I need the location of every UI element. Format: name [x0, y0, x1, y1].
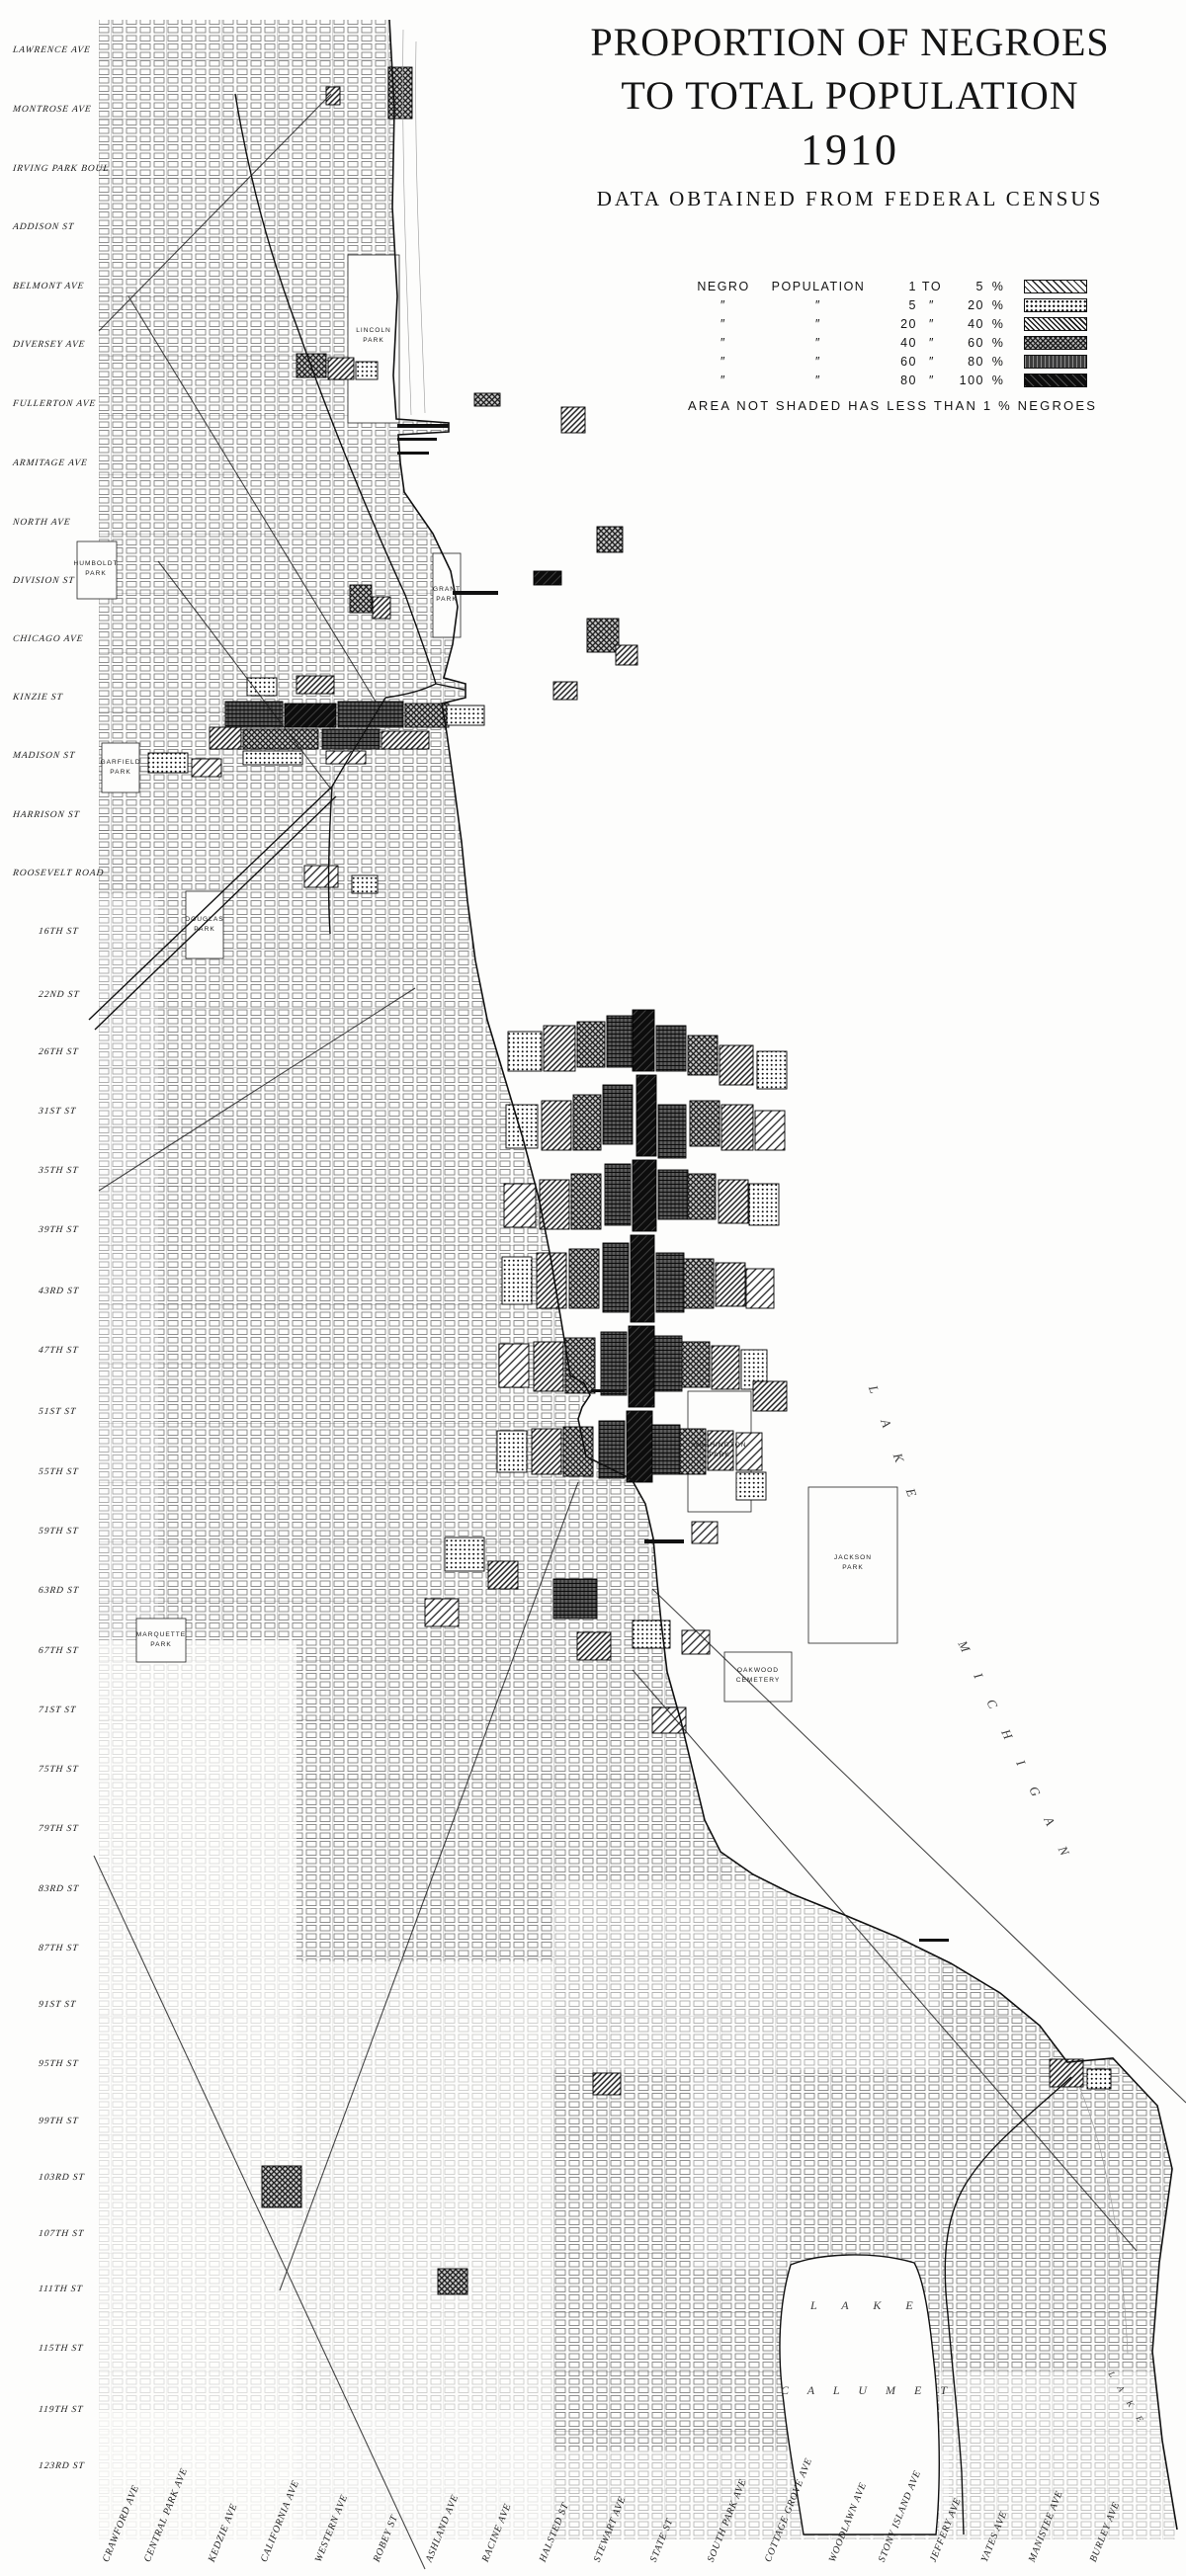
legend-row: ″″80″100%: [688, 371, 1129, 389]
shaded-region-p2: [506, 1105, 538, 1148]
water-label: L A K E: [810, 2298, 924, 2313]
legend-cell: 40: [947, 317, 984, 331]
shaded-region-p4: [262, 2166, 301, 2207]
shaded-region-p6: [633, 1010, 654, 1071]
legend-row: ″″40″60%: [688, 333, 1129, 352]
street-label: 26TH ST: [12, 1047, 147, 1057]
legend-cell: %: [984, 336, 1012, 350]
shaded-region-p2: [247, 678, 277, 696]
shaded-region-p2: [148, 753, 188, 773]
shaded-region-p5: [658, 1105, 686, 1158]
legend-cell: ″: [759, 374, 878, 387]
park-label: GRANT PARK: [433, 585, 461, 605]
shaded-region-p4: [571, 1174, 601, 1229]
shaded-region-p5: [553, 1579, 597, 1619]
shaded-region-p5: [656, 1253, 684, 1312]
street-label: 35TH ST: [12, 1166, 147, 1176]
title-subtitle: DATA OBTAINED FROM FEDERAL CENSUS: [553, 187, 1146, 211]
legend-cell: ″: [688, 336, 759, 350]
shaded-region-p1: [304, 866, 338, 887]
street-label: 47TH ST: [12, 1346, 147, 1356]
shaded-region-p5: [322, 729, 380, 749]
shaded-region-p3: [719, 1180, 748, 1223]
shaded-region-p3: [593, 2073, 621, 2095]
street-label: 63RD ST: [12, 1586, 147, 1596]
shaded-region-p2: [749, 1184, 779, 1225]
shaded-region-p3: [210, 727, 241, 749]
street-label: 111TH ST: [12, 2285, 147, 2294]
title-line-2: TO TOTAL POPULATION: [553, 69, 1146, 123]
legend-cell: 20: [947, 298, 984, 312]
shaded-region-p5: [656, 1026, 686, 1071]
legend-cell: 100: [947, 374, 984, 387]
street-label: 79TH ST: [12, 1824, 147, 1834]
shaded-region-p4: [565, 1338, 595, 1393]
street-label: 123RD ST: [12, 2461, 147, 2471]
shaded-region-p4: [569, 1249, 599, 1308]
shaded-region-p3: [328, 358, 354, 379]
shaded-region-p3: [753, 1381, 787, 1411]
street-label: 119TH ST: [12, 2405, 147, 2415]
street-label: 59TH ST: [12, 1527, 147, 1537]
shaded-region-p4: [688, 1174, 716, 1219]
shaded-region-p2: [445, 1537, 484, 1571]
shaded-region-p4: [438, 2269, 467, 2294]
street-label: FULLERTON AVE: [12, 399, 122, 409]
shaded-region-p6: [534, 571, 561, 585]
street-label: 103RD ST: [12, 2173, 147, 2183]
shaded-region-p6: [285, 704, 336, 727]
street-label: ROOSEVELT ROAD: [12, 869, 122, 878]
shaded-region-p4: [682, 1342, 710, 1387]
shaded-region-p4: [563, 1427, 593, 1476]
park-label: WASHINGTON PARK: [692, 1441, 746, 1460]
shaded-region-p2: [757, 1051, 787, 1089]
shaded-region-p1: [692, 1522, 718, 1543]
street-label: 75TH ST: [12, 1765, 147, 1775]
legend-cell: ″: [759, 355, 878, 369]
shaded-region-p3: [616, 645, 637, 665]
street-label: 31ST ST: [12, 1107, 147, 1117]
legend-cell: 60: [947, 336, 984, 350]
legend-cell: NEGRO: [688, 280, 759, 293]
shaded-region-p2: [502, 1257, 532, 1304]
shaded-region-p5: [654, 1336, 682, 1391]
water-label: C A L U M E T: [781, 2383, 955, 2398]
street-label: 43RD ST: [12, 1287, 147, 1296]
shaded-region-p4: [243, 729, 318, 749]
shaded-region-p3: [553, 682, 577, 700]
shaded-region-p5: [658, 1170, 688, 1219]
legend-swatch-p4: [1024, 336, 1087, 350]
shaded-region-p4: [684, 1259, 714, 1308]
census-map-page: PROPORTION OF NEGROES TO TOTAL POPULATIO…: [0, 0, 1186, 2576]
legend-cell: ″: [917, 317, 947, 331]
legend-row: NEGROPOPULATION1TO5%: [688, 277, 1129, 295]
legend-cell: 60: [878, 355, 917, 369]
legend-swatch-p5: [1024, 355, 1087, 369]
legend-cell: 40: [878, 336, 917, 350]
shaded-region-p4: [350, 585, 372, 613]
legend-cell: 20: [878, 317, 917, 331]
legend-swatch-p6: [1024, 374, 1087, 387]
shaded-region-p2: [736, 1472, 766, 1500]
street-label: MONTROSE AVE: [12, 105, 122, 115]
shaded-region-p5: [605, 1164, 631, 1225]
shaded-region-p1: [682, 1630, 710, 1654]
street-label: BELMONT AVE: [12, 282, 122, 291]
street-label: 87TH ST: [12, 1944, 147, 1953]
legend-cell: ″: [688, 317, 759, 331]
street-label: LAWRENCE AVE: [12, 45, 122, 55]
shaded-region-p6: [631, 1235, 654, 1322]
title-line-1: PROPORTION OF NEGROES: [553, 16, 1146, 69]
shaded-region-p3: [534, 1342, 563, 1391]
shaded-region-p3: [712, 1346, 739, 1389]
shaded-region-p5: [603, 1085, 633, 1144]
street-label: 99TH ST: [12, 2117, 147, 2126]
park-label: MARQUETTE PARK: [136, 1630, 186, 1650]
title-year: 1910: [553, 125, 1146, 175]
legend-row: ″″20″40%: [688, 314, 1129, 333]
park-label: GARFIELD PARK: [101, 758, 141, 778]
shaded-region-p2: [447, 706, 484, 725]
legend-footnote: AREA NOT SHADED HAS LESS THAN 1 % NEGROE…: [688, 398, 1129, 413]
legend-cell: 5: [947, 280, 984, 293]
shaded-region-p1: [504, 1184, 536, 1227]
shaded-region-p3: [561, 407, 585, 433]
legend-cell: 1: [878, 280, 917, 293]
shaded-region-p4: [573, 1095, 601, 1150]
legend-cell: %: [984, 355, 1012, 369]
shaded-region-p5: [652, 1425, 680, 1474]
shaded-region-p1: [746, 1269, 774, 1308]
street-label: 71ST ST: [12, 1705, 147, 1715]
legend-cell: ″: [917, 355, 947, 369]
shaded-region-p4: [587, 619, 619, 652]
legend-row: ″″5″20%: [688, 295, 1129, 314]
shaded-region-p3: [373, 597, 390, 619]
shaded-region-p6: [629, 1326, 654, 1407]
park-label: LINCOLN PARK: [356, 326, 391, 346]
legend-cell: 80: [878, 374, 917, 387]
shaded-region-p6: [633, 1160, 656, 1231]
legend-cell: ″: [917, 298, 947, 312]
street-label: 115TH ST: [12, 2344, 147, 2354]
shaded-region-p4: [577, 1022, 605, 1067]
shaded-region-p1: [192, 759, 221, 777]
map-title-block: PROPORTION OF NEGROES TO TOTAL POPULATIO…: [553, 16, 1146, 211]
shaded-region-p1: [425, 1599, 459, 1626]
legend-rows: NEGROPOPULATION1TO5%″″5″20%″″20″40%″″40″…: [688, 277, 1129, 389]
shaded-region-p3: [532, 1429, 561, 1474]
street-label: CHICAGO AVE: [12, 634, 122, 644]
legend-cell: ″: [759, 317, 878, 331]
shaded-region-p3: [1050, 2059, 1083, 2087]
shaded-region-p4: [690, 1101, 720, 1146]
street-label: HARRISON ST: [12, 810, 122, 820]
shaded-region-p2: [1087, 2069, 1111, 2089]
street-label: 22ND ST: [12, 990, 147, 1000]
legend-cell: 80: [947, 355, 984, 369]
shaded-region-p3: [577, 1632, 611, 1660]
legend-swatch-p1: [1024, 280, 1087, 293]
street-label: 83RD ST: [12, 1884, 147, 1894]
shaded-region-p2: [508, 1032, 542, 1071]
street-label: 51ST ST: [12, 1407, 147, 1417]
legend-cell: TO: [917, 280, 947, 293]
legend-cell: POPULATION: [759, 280, 878, 293]
shaded-region-p2: [243, 751, 302, 765]
shaded-region-p4: [688, 1036, 718, 1075]
street-label: 67TH ST: [12, 1646, 147, 1656]
shaded-region-p5: [607, 1016, 633, 1067]
legend-cell: ″: [917, 374, 947, 387]
shaded-region-p3: [326, 87, 340, 105]
legend-cell: %: [984, 317, 1012, 331]
legend-cell: ″: [688, 374, 759, 387]
legend-cell: %: [984, 298, 1012, 312]
legend-cell: ″: [688, 355, 759, 369]
shaded-region-p3: [296, 676, 334, 694]
shaded-region-p3: [542, 1101, 571, 1150]
shaded-region-p2: [352, 875, 378, 893]
shaded-region-p2: [497, 1431, 527, 1472]
legend-cell: %: [984, 280, 1012, 293]
shaded-region-p5: [603, 1243, 629, 1312]
legend-swatch-p3: [1024, 317, 1087, 331]
street-label: 107TH ST: [12, 2229, 147, 2239]
shaded-region-p4: [474, 393, 500, 406]
shaded-region-p3: [721, 1105, 753, 1150]
legend-cell: 5: [878, 298, 917, 312]
legend-cell: %: [984, 374, 1012, 387]
legend-cell: ″: [688, 298, 759, 312]
street-label: IRVING PARK BOUL: [12, 164, 122, 174]
shaded-region-p2: [356, 362, 378, 379]
shaded-region-p3: [381, 731, 429, 749]
shaded-region-p3: [544, 1026, 575, 1071]
street-label: 39TH ST: [12, 1225, 147, 1235]
park-label: HUMBOLDT PARK: [74, 559, 119, 579]
legend-cell: ″: [917, 336, 947, 350]
street-label: 16TH ST: [12, 927, 147, 937]
street-label: NORTH AVE: [12, 518, 122, 528]
shaded-region-p6: [636, 1075, 656, 1156]
street-label: DIVERSEY AVE: [12, 340, 122, 350]
street-label: 91ST ST: [12, 2000, 147, 2010]
shaded-region-p6: [627, 1411, 652, 1482]
legend: NEGROPOPULATION1TO5%″″5″20%″″20″40%″″40″…: [688, 277, 1129, 413]
legend-swatch-p2: [1024, 298, 1087, 312]
street-label: 95TH ST: [12, 2059, 147, 2069]
shaded-region-p3: [716, 1263, 745, 1306]
street-label: ARMITAGE AVE: [12, 458, 122, 468]
shaded-region-p1: [499, 1344, 529, 1387]
street-label: KINZIE ST: [12, 693, 122, 703]
shaded-region-p3: [720, 1045, 753, 1085]
park-label: DOUGLAS PARK: [185, 915, 223, 935]
street-label: ADDISON ST: [12, 222, 122, 232]
legend-row: ″″60″80%: [688, 352, 1129, 371]
park-label: OAKWOOD CEMETERY: [736, 1666, 781, 1686]
shaded-region-p1: [755, 1111, 785, 1150]
street-label: 55TH ST: [12, 1467, 147, 1477]
shaded-region-p4: [597, 527, 623, 552]
shaded-region-p3: [488, 1561, 518, 1589]
shaded-region-p5: [601, 1332, 627, 1395]
legend-cell: ″: [759, 336, 878, 350]
legend-cell: ″: [759, 298, 878, 312]
park-label: JACKSON PARK: [834, 1553, 872, 1573]
